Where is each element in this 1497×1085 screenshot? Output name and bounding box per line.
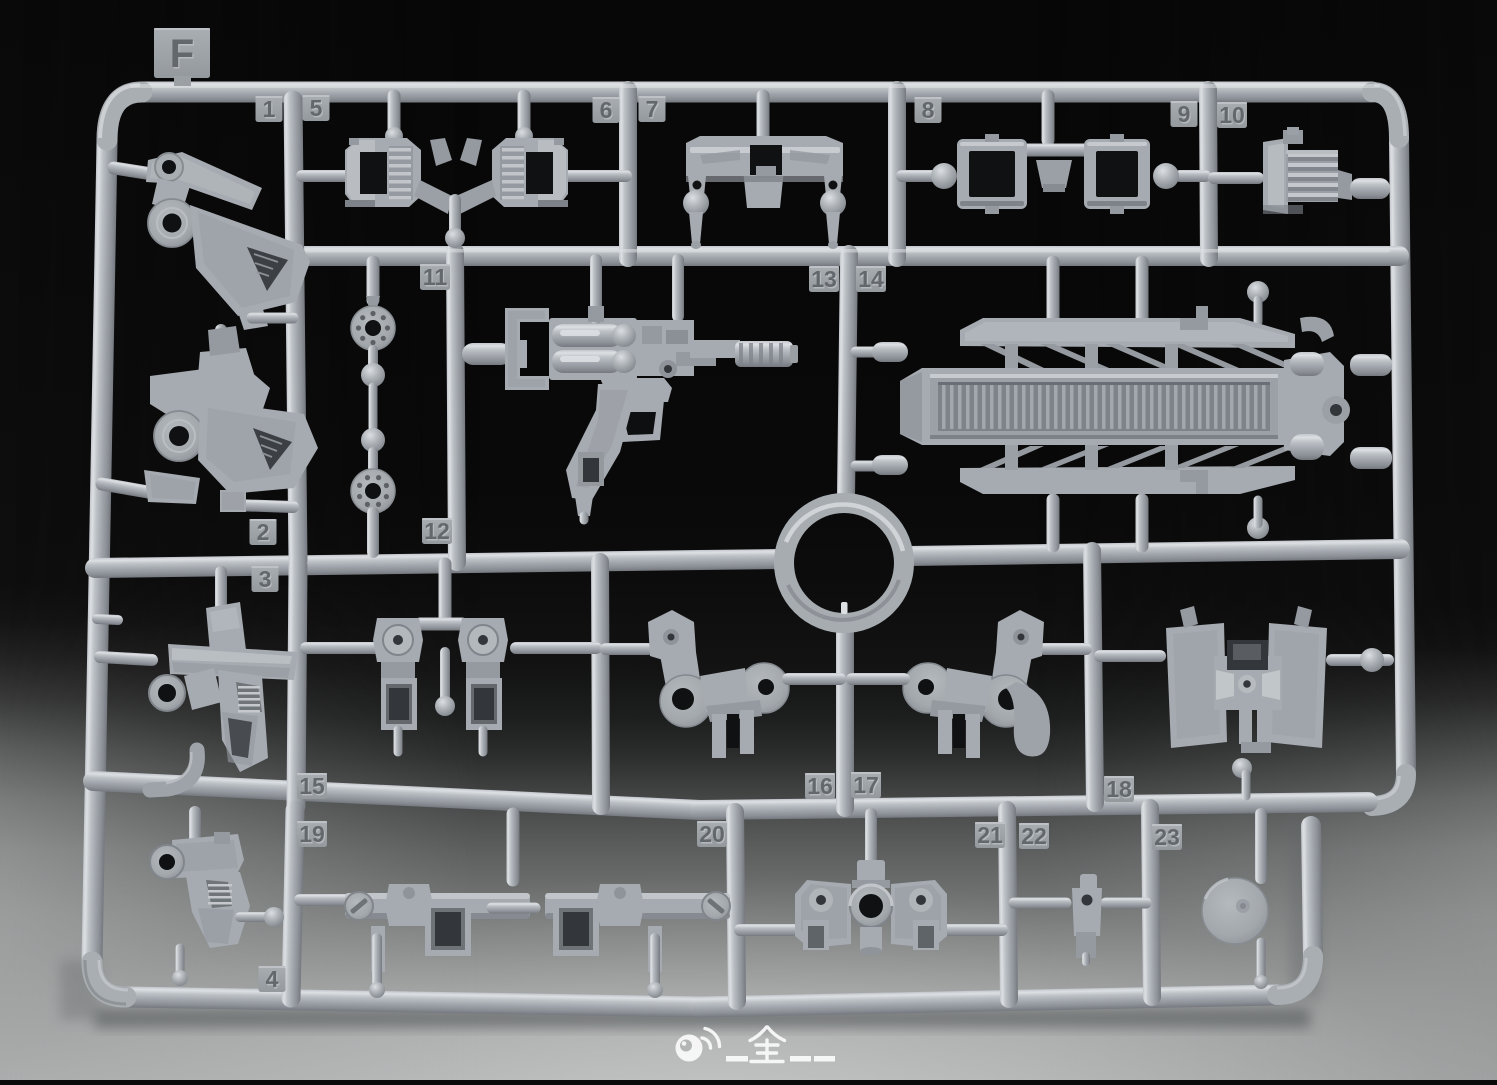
svg-text:6: 6 — [600, 97, 613, 123]
svg-text:4: 4 — [266, 966, 279, 992]
svg-text:15: 15 — [299, 773, 325, 799]
svg-text:19: 19 — [299, 821, 325, 847]
svg-text:16: 16 — [807, 773, 833, 799]
svg-text:8: 8 — [922, 97, 935, 123]
svg-text:F: F — [170, 32, 194, 76]
svg-text:22: 22 — [1021, 823, 1047, 849]
svg-text:2: 2 — [257, 519, 270, 545]
svg-text:14: 14 — [858, 266, 884, 292]
svg-text:10: 10 — [1219, 102, 1245, 128]
svg-text:9: 9 — [1178, 101, 1191, 127]
svg-text:17: 17 — [853, 772, 879, 798]
svg-text:21: 21 — [977, 822, 1003, 848]
svg-text:1: 1 — [263, 96, 276, 122]
svg-text:7: 7 — [646, 96, 659, 122]
svg-text:20: 20 — [699, 821, 725, 847]
svg-text:13: 13 — [811, 266, 837, 292]
svg-text:18: 18 — [1106, 776, 1132, 802]
svg-text:11: 11 — [423, 264, 448, 290]
svg-text:5: 5 — [310, 95, 323, 121]
svg-text:12: 12 — [424, 518, 450, 544]
svg-text:23: 23 — [1154, 824, 1180, 850]
svg-text:3: 3 — [259, 566, 272, 592]
